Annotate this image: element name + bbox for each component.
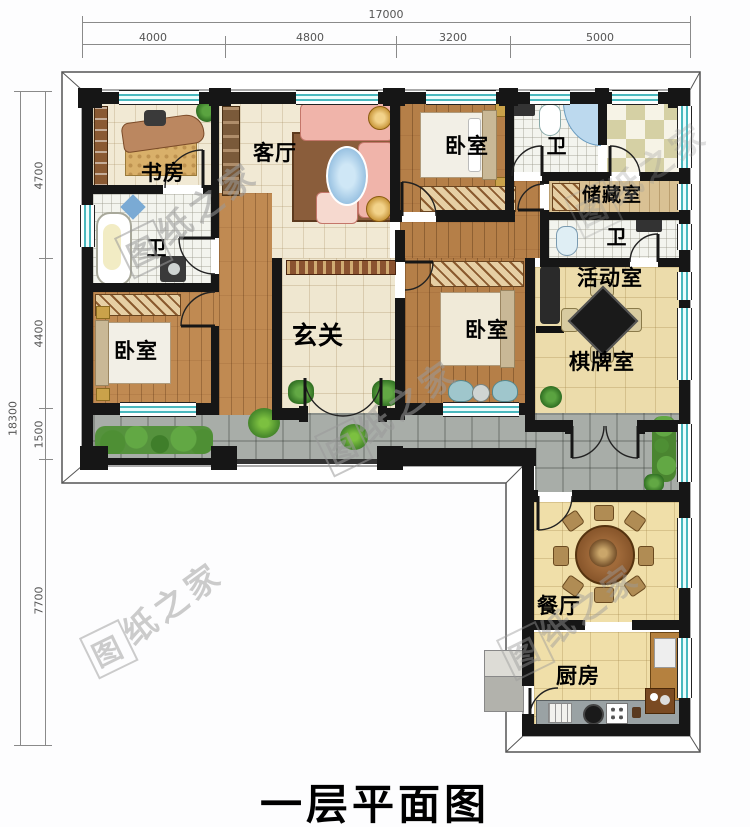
wardrobe bbox=[420, 186, 516, 212]
dim-tick bbox=[82, 16, 83, 58]
door-post bbox=[565, 420, 573, 434]
dim-top-seg-line bbox=[82, 44, 690, 45]
window bbox=[612, 90, 658, 105]
hedge bbox=[95, 426, 213, 454]
dim-tick bbox=[396, 36, 397, 58]
wall bbox=[534, 490, 538, 502]
coffee-table bbox=[326, 146, 368, 206]
door-post bbox=[637, 420, 645, 434]
label-bedroom-left: 卧室 bbox=[98, 340, 174, 363]
window bbox=[80, 205, 95, 247]
pillar bbox=[80, 446, 108, 470]
dim-left-seg-2: 1500 bbox=[33, 405, 46, 465]
kettle bbox=[632, 707, 641, 718]
window bbox=[530, 90, 570, 105]
sink-bowl bbox=[650, 693, 658, 701]
bookshelf bbox=[94, 106, 108, 190]
door-post bbox=[299, 406, 308, 422]
wall bbox=[196, 403, 219, 415]
dim-top-total-line bbox=[82, 22, 690, 23]
window bbox=[677, 424, 692, 482]
window bbox=[443, 402, 519, 417]
round-lamp-table bbox=[366, 196, 392, 222]
window bbox=[677, 518, 692, 588]
window bbox=[677, 308, 692, 380]
wall bbox=[522, 724, 690, 736]
gas-stove bbox=[606, 703, 628, 724]
wall bbox=[658, 258, 679, 267]
wall bbox=[211, 326, 219, 413]
wall bbox=[505, 101, 514, 222]
hallway-right-floor bbox=[514, 181, 540, 258]
dim-tick bbox=[14, 745, 52, 746]
label-chess: 棋牌室 bbox=[548, 351, 656, 374]
wall bbox=[525, 258, 535, 420]
window bbox=[677, 638, 692, 698]
wall bbox=[93, 283, 219, 292]
pillar bbox=[383, 88, 405, 106]
pillar bbox=[377, 446, 403, 470]
chair bbox=[594, 505, 614, 521]
window bbox=[296, 90, 378, 105]
toilet bbox=[539, 104, 561, 136]
pillar bbox=[595, 88, 609, 104]
pillar bbox=[209, 88, 231, 106]
window bbox=[119, 90, 199, 105]
chair bbox=[553, 546, 569, 566]
wall bbox=[82, 403, 120, 415]
wall bbox=[390, 101, 400, 222]
wall bbox=[390, 210, 402, 222]
dim-left-total: 18300 bbox=[7, 389, 20, 449]
dim-left-total-line bbox=[20, 91, 21, 745]
dim-top-seg-0: 4000 bbox=[118, 31, 188, 44]
dim-tick bbox=[690, 16, 691, 58]
wall bbox=[525, 420, 570, 432]
label-bath-top: 卫 bbox=[539, 135, 575, 157]
dim-left-seg-3: 7700 bbox=[33, 571, 46, 631]
plant bbox=[540, 386, 562, 408]
window bbox=[677, 184, 692, 210]
wall bbox=[505, 172, 512, 181]
wall bbox=[640, 420, 679, 432]
label-foyer: 玄关 bbox=[280, 322, 356, 350]
hallway-floor bbox=[400, 222, 525, 258]
wall bbox=[395, 230, 405, 262]
window bbox=[677, 224, 692, 250]
label-kitchen: 厨房 bbox=[540, 665, 616, 688]
label-bedroom-top: 卧室 bbox=[429, 135, 505, 158]
outdoor-landing bbox=[484, 676, 524, 712]
drawing-title: 一层平面图 bbox=[0, 771, 750, 827]
desk-chair bbox=[144, 110, 166, 126]
pillar bbox=[499, 88, 518, 106]
wardrobe bbox=[430, 261, 524, 287]
pillar bbox=[211, 446, 237, 470]
label-activity: 活动室 bbox=[556, 267, 664, 290]
wall bbox=[632, 620, 679, 630]
wall bbox=[572, 490, 679, 502]
kitchen-appliance bbox=[654, 638, 676, 668]
dim-left-seg-0: 4700 bbox=[33, 146, 46, 206]
sink-bowl bbox=[660, 695, 670, 705]
wall bbox=[403, 448, 536, 466]
label-bedroom-mid: 卧室 bbox=[449, 319, 525, 342]
dim-top-seg-3: 5000 bbox=[565, 31, 635, 44]
dim-top-seg-1: 4800 bbox=[275, 31, 345, 44]
wall bbox=[93, 185, 163, 194]
label-study: 书房 bbox=[125, 162, 201, 185]
dim-top-total: 17000 bbox=[356, 8, 416, 21]
tub-chair bbox=[492, 380, 518, 402]
wall bbox=[436, 210, 515, 222]
round-lamp-table bbox=[368, 106, 392, 130]
corridor-floor bbox=[219, 193, 272, 415]
dim-tick bbox=[39, 258, 53, 259]
dim-top-seg-2: 3200 bbox=[418, 31, 488, 44]
dish-rack bbox=[548, 703, 572, 723]
dim-left-seg-1: 4400 bbox=[33, 304, 46, 364]
treadmill-bar bbox=[536, 326, 564, 333]
window bbox=[120, 402, 196, 417]
shoe-cabinet bbox=[286, 260, 396, 275]
dim-tick bbox=[510, 36, 511, 58]
wall bbox=[598, 101, 607, 145]
toilet bbox=[556, 226, 578, 256]
plant bbox=[288, 380, 314, 404]
terrace-planter-wall bbox=[104, 458, 214, 465]
bath-counter bbox=[636, 218, 662, 232]
window bbox=[677, 272, 692, 300]
nightstand bbox=[96, 388, 110, 401]
stove-burner bbox=[583, 704, 604, 725]
nightstand bbox=[96, 306, 110, 319]
floor-plan-canvas: 17000 4000 4800 3200 5000 18300 4700 440… bbox=[0, 0, 750, 827]
dim-tick bbox=[14, 91, 52, 92]
wall bbox=[540, 181, 549, 184]
chair bbox=[638, 546, 654, 566]
side-table bbox=[472, 384, 490, 402]
pillar bbox=[668, 88, 690, 108]
window bbox=[426, 90, 496, 105]
dim-tick bbox=[225, 36, 226, 58]
pillar bbox=[78, 88, 102, 108]
washing-machine-door bbox=[168, 263, 180, 275]
